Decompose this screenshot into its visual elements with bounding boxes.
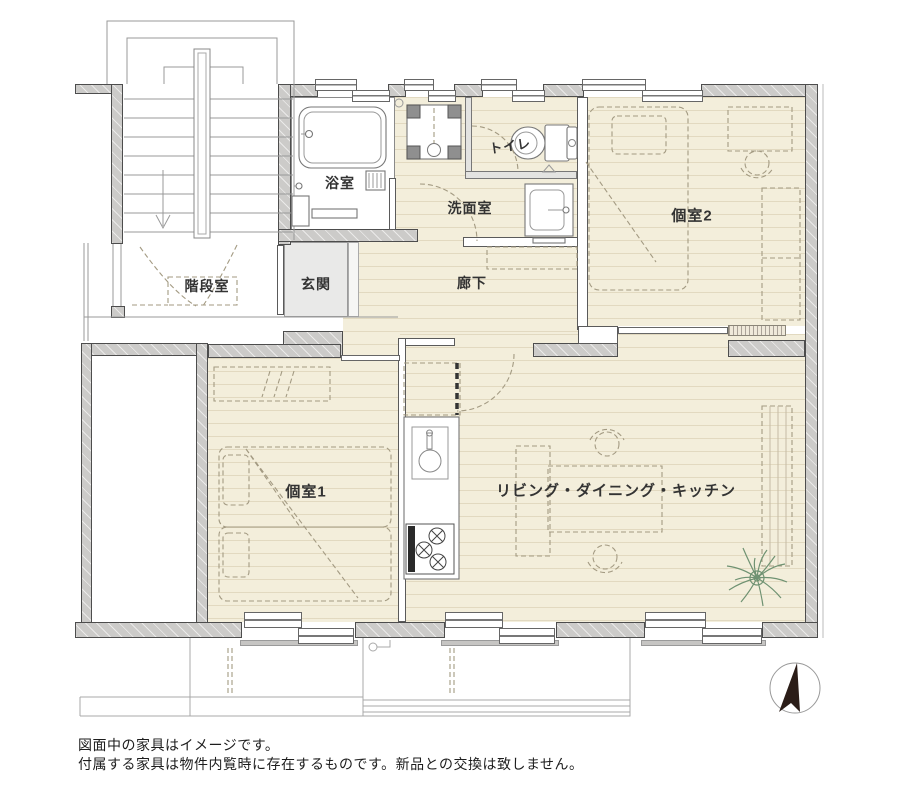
room-label-entrance: 玄関	[301, 274, 331, 294]
ldk-storage	[762, 406, 792, 566]
kitchen-counter	[404, 363, 460, 579]
disclaimer-line-2: 付属する家具は物件内覧時に存在するものです。新品との交換は致しません。	[78, 754, 584, 774]
room-label-room1: 個室1	[285, 481, 326, 502]
balcony	[80, 638, 630, 716]
stairs-down-arrow	[156, 170, 170, 228]
room-label-stairwell: 階段室	[185, 276, 230, 296]
room-label-hallway: 廊下	[457, 273, 487, 293]
dining-set	[516, 429, 662, 572]
room-label-bathroom: 浴室	[325, 173, 355, 193]
bathtub	[299, 107, 386, 168]
compass-north-icon	[770, 663, 820, 713]
disclaimer-line-1: 図面中の家具はイメージです。	[78, 735, 279, 755]
balcony-partition	[228, 648, 454, 694]
room-label-room2: 個室2	[671, 205, 712, 226]
outdoor-tap	[369, 643, 377, 651]
washing-machine-pan	[395, 99, 461, 159]
floor-plan: 浴室 トイレ 洗面室 個室2 階段室 玄関 廊下 個室1 リビング・ダイニング・…	[0, 0, 900, 800]
hallway-storage	[487, 247, 577, 269]
refrigerator-space	[404, 363, 460, 415]
room-label-washroom: 洗面室	[448, 198, 493, 218]
washbasin	[525, 184, 573, 243]
plan-linework	[0, 0, 900, 800]
room-label-ldk: リビング・ダイニング・キッチン	[496, 480, 736, 501]
